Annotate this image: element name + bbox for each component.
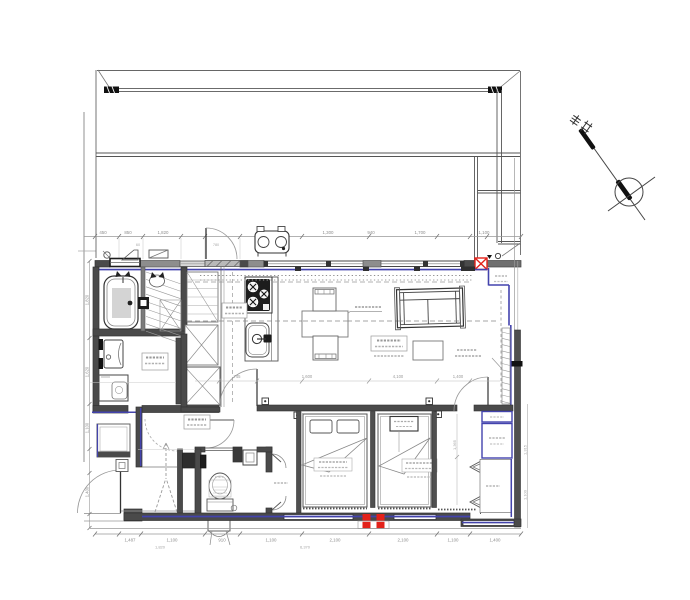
svg-text:1,487: 1,487 <box>125 538 137 543</box>
svg-text:1,400: 1,400 <box>84 486 89 497</box>
svg-text:1,620: 1,620 <box>84 366 89 377</box>
svg-text:2,100: 2,100 <box>330 538 342 543</box>
svg-text:6,370: 6,370 <box>300 545 311 550</box>
svg-text:1,820: 1,820 <box>155 545 166 550</box>
svg-text:1,820: 1,820 <box>84 294 89 305</box>
svg-text:1,100: 1,100 <box>448 538 460 543</box>
svg-text:940: 940 <box>367 230 375 235</box>
svg-text:1,100: 1,100 <box>523 489 528 500</box>
svg-text:1,300: 1,300 <box>323 230 335 235</box>
svg-text:1,100: 1,100 <box>479 230 491 235</box>
svg-text:1,315: 1,315 <box>523 444 528 455</box>
svg-text:1,820: 1,820 <box>158 230 170 235</box>
svg-text:1,600: 1,600 <box>302 374 313 379</box>
svg-text:910: 910 <box>218 538 226 543</box>
svg-text:1,400: 1,400 <box>490 538 502 543</box>
svg-text:1,700: 1,700 <box>415 230 427 235</box>
svg-text:1,100: 1,100 <box>167 538 179 543</box>
svg-text:1,100: 1,100 <box>266 538 278 543</box>
svg-text:2,100: 2,100 <box>398 538 410 543</box>
svg-text:450: 450 <box>99 230 107 235</box>
svg-text:780: 780 <box>213 243 219 247</box>
svg-text:1,365: 1,365 <box>452 439 457 450</box>
svg-text:745: 745 <box>234 374 242 379</box>
svg-text:1,100: 1,100 <box>84 422 89 433</box>
svg-text:4,100: 4,100 <box>393 374 404 379</box>
svg-text:850: 850 <box>124 230 132 235</box>
svg-text:60: 60 <box>136 243 140 247</box>
svg-text:1,400: 1,400 <box>453 374 464 379</box>
